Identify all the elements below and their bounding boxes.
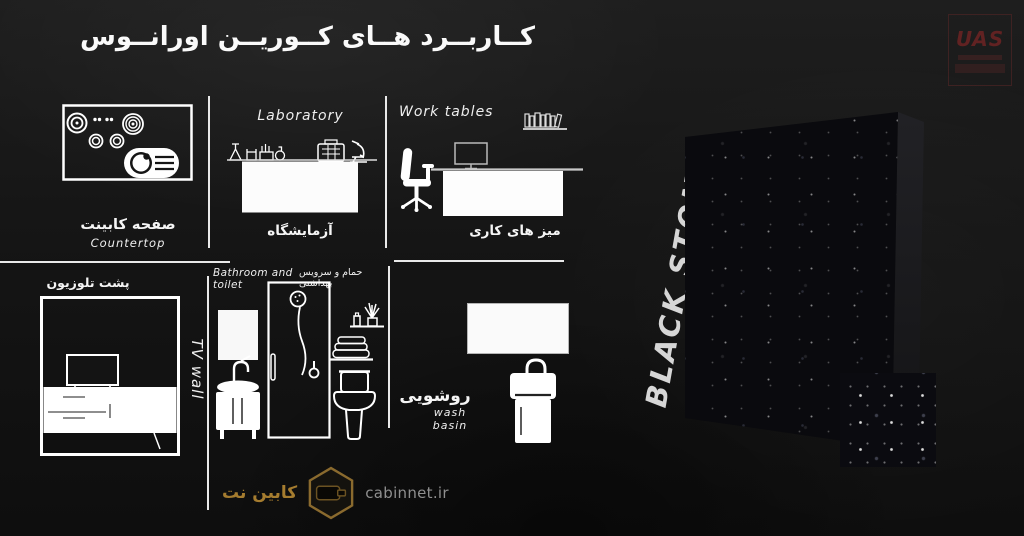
- wash-basin-mirror: [467, 303, 569, 354]
- divider-horizontal-left: [0, 261, 230, 263]
- bookshelf-illustration: [520, 110, 570, 134]
- watermark-uas-text: UAS: [956, 27, 1004, 51]
- divider-vertical-3: [207, 276, 209, 510]
- bathroom-illustration: [212, 280, 388, 455]
- divider-vertical-4: [388, 266, 390, 428]
- hexagon-cabinet-icon: [307, 466, 355, 520]
- lab-bench-illustration: [222, 137, 382, 217]
- page-title: کــاربــرد هــای کــوریــن اورانــوس: [50, 22, 565, 52]
- work-tables-label-fa: میز های کاری: [445, 223, 585, 239]
- divider-vertical-1: [208, 96, 210, 248]
- tv-wall-label-fa: پشت تلوزیون: [40, 275, 136, 290]
- poster-canvas: کــاربــرد هــای کــوریــن اورانــوس UAS: [0, 0, 1024, 536]
- divider-horizontal-right: [394, 260, 564, 262]
- stone-sample-tile: [840, 373, 936, 467]
- stone-slab: [650, 95, 950, 485]
- desk-illustration: [395, 140, 585, 218]
- laboratory-label-fa: آزمایشگاه: [230, 223, 370, 239]
- watermark-bar: [955, 64, 1006, 73]
- watermark-bar: [958, 55, 1001, 60]
- tv-frame-illustration: [40, 296, 180, 456]
- wash-basin-label-fa: روشویی: [395, 386, 475, 406]
- laboratory-heading: Laboratory: [228, 108, 373, 124]
- wash-basin-label-en: wash basin: [418, 406, 482, 432]
- wash-basin-illustration: [505, 355, 565, 445]
- footer-logo: کابین نت cabinnet.ir: [222, 464, 449, 522]
- website-url: cabinnet.ir: [365, 484, 449, 502]
- countertop-label-fa: صفحه کابینت: [58, 217, 198, 233]
- divider-vertical-2: [385, 96, 387, 248]
- brand-watermark: UAS: [948, 14, 1012, 86]
- countertop-label-en: Countertop: [58, 236, 198, 250]
- brand-name-fa: کابین نت: [222, 483, 297, 503]
- cooktop-illustration: [62, 104, 193, 181]
- tv-wall-rotated-label: TV wall: [184, 299, 206, 439]
